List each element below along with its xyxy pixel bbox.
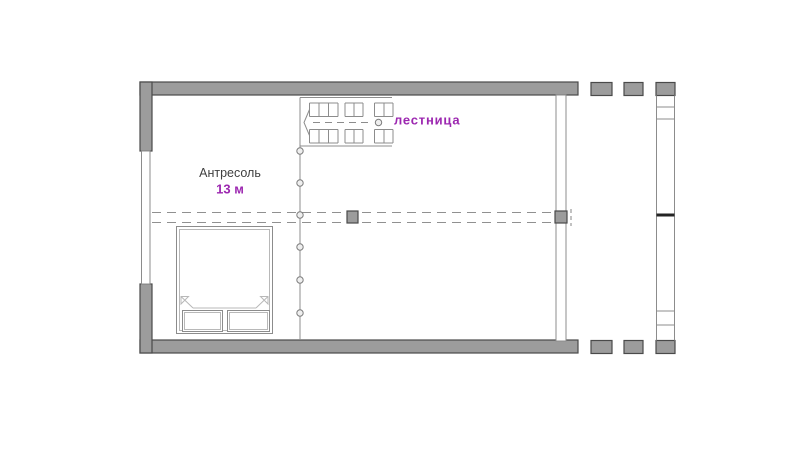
facade-strip-top-block <box>656 83 675 96</box>
left-wall-upper <box>140 82 152 151</box>
column-center <box>347 211 358 223</box>
column-right <box>555 211 567 223</box>
top-wall <box>140 82 578 95</box>
bottom-wall <box>140 340 578 353</box>
floor-plan-canvas: Антресоль 13 м лестница <box>0 0 800 450</box>
facade-strip-dark-band <box>657 214 675 217</box>
railing-post <box>297 148 303 154</box>
left-wall-lower <box>140 284 152 353</box>
bed <box>177 227 273 334</box>
pillow-right <box>228 311 270 332</box>
railing-post <box>297 310 303 316</box>
facade-strip-bottom-block <box>656 341 675 354</box>
railing-post <box>297 212 303 218</box>
stair-direction-arrow-icon <box>304 110 310 136</box>
railing-post <box>297 180 303 186</box>
railing-post <box>297 244 303 250</box>
stair-walk-start-marker <box>375 119 381 125</box>
facade-piers <box>591 83 643 354</box>
pier <box>624 83 643 96</box>
facade-strip <box>656 83 675 354</box>
staircase <box>300 98 393 147</box>
dashed-axis-lines <box>152 209 571 226</box>
railing <box>297 146 303 340</box>
pier <box>591 83 612 96</box>
mezzanine-floor-plan: Антресоль 13 м лестница <box>0 0 800 450</box>
railing-post <box>297 277 303 283</box>
room-name-label: Антресоль <box>199 166 261 180</box>
pier <box>591 341 612 354</box>
stair-name-label: лестница <box>394 113 460 128</box>
left-window <box>142 151 151 284</box>
pier <box>624 341 643 354</box>
room-area-label: 13 м <box>216 182 244 197</box>
pillow-left <box>183 311 223 332</box>
